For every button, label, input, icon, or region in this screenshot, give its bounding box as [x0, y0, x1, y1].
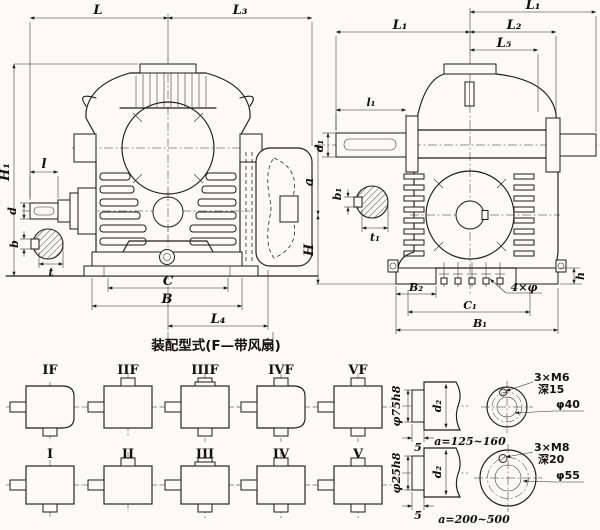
- depth-label-2: 深20: [538, 452, 565, 466]
- dim-shaft-dia-2: d₂: [431, 466, 444, 479]
- bore-label-1: φ40: [556, 398, 580, 411]
- dim-t1: t₁: [370, 231, 380, 244]
- dim-B1: B₁: [472, 317, 487, 330]
- assembly-caption: 装配型式(F—带风扇): [150, 337, 281, 354]
- dim-l: l: [42, 157, 47, 172]
- wheel-hub: [456, 201, 484, 229]
- hub-keyway: [482, 211, 488, 220]
- dim-spigot-dia-1: φ75h8: [390, 385, 403, 426]
- left-shaft-boss: [74, 134, 96, 162]
- range-label-1: a=125~160: [434, 435, 506, 448]
- config-IV: IV: [237, 447, 315, 518]
- dim-d: d: [6, 207, 19, 215]
- config-VF: VF: [314, 363, 392, 442]
- depth-label-1: 深15: [538, 382, 564, 396]
- side-input-shaft: [336, 116, 418, 172]
- dim-b1: b₁: [331, 188, 344, 201]
- dim-L5: L₅: [496, 36, 512, 51]
- input-shaft: [30, 188, 96, 234]
- dim-t: t: [48, 266, 53, 279]
- keyway-detail-front: [31, 229, 63, 259]
- bore-label-2: φ55: [556, 469, 580, 482]
- svg-text:IF: IF: [42, 363, 58, 378]
- top-cap: [140, 64, 196, 73]
- svg-text:IVF: IVF: [268, 363, 294, 378]
- dim-H1: H₁: [0, 163, 13, 182]
- tapped-hole-2: [499, 455, 507, 463]
- dim-C1: C₁: [463, 299, 477, 312]
- dim-spigot-len-2: 5: [414, 509, 422, 522]
- dim-l1: l₁: [367, 96, 376, 109]
- dim-foot-holes: 4×φ: [511, 281, 538, 294]
- dim-L4: L₄: [210, 312, 226, 327]
- side-view: [316, 56, 600, 296]
- dim-d1: d₁: [313, 140, 326, 153]
- dim-B: B: [161, 292, 173, 307]
- dim-a: a: [302, 178, 317, 186]
- dim-L: L: [92, 3, 102, 18]
- config-IF: IF: [6, 363, 84, 442]
- dim-b: b: [8, 240, 21, 248]
- drawing-sheet: L L₃ H₁ l d b t C B L₄ 装配型式(F—带风扇): [0, 0, 600, 530]
- fan-hub: [280, 196, 298, 222]
- tapped-hole-1: [500, 389, 507, 396]
- config-IIIF: IIIF: [161, 363, 239, 442]
- svg-text:IIIF: IIIF: [191, 363, 219, 378]
- dim-L1-right: L₁: [525, 0, 541, 13]
- config-II: II: [84, 447, 162, 512]
- config-thumbnails: IF IIF IIIF IVF: [6, 363, 392, 518]
- config-IVF: IVF: [237, 363, 315, 442]
- dim-H: H: [302, 243, 317, 257]
- side-top-cap: [444, 64, 496, 74]
- dim-spigot-dia-2: φ25h8: [390, 452, 403, 493]
- dim-spigot-len-1: 5: [414, 441, 422, 454]
- dim-L3: L₃: [232, 3, 248, 18]
- dim-C: C: [163, 274, 174, 289]
- config-V: V: [314, 447, 392, 518]
- oil-plug: [160, 250, 175, 265]
- range-label-2: a=200~500: [438, 513, 510, 526]
- dim-shaft-dia-1: d₂: [431, 400, 444, 413]
- side-output-end: [546, 118, 596, 172]
- svg-text:I: I: [47, 447, 53, 462]
- keyway-detail-side: [354, 186, 388, 218]
- dim-L2: L₂: [506, 18, 522, 33]
- front-view: [6, 58, 318, 282]
- config-III: III: [161, 447, 239, 518]
- dim-h: h: [574, 272, 587, 280]
- config-I: I: [6, 447, 84, 518]
- reducer-dimension-drawing: L L₃ H₁ l d b t C B L₄ 装配型式(F—带风扇): [0, 0, 600, 530]
- config-IIF: IIF: [84, 363, 162, 436]
- svg-text:IIF: IIF: [117, 363, 139, 378]
- dim-B2: B₂: [408, 281, 423, 294]
- dim-L1-left: L₁: [392, 18, 408, 33]
